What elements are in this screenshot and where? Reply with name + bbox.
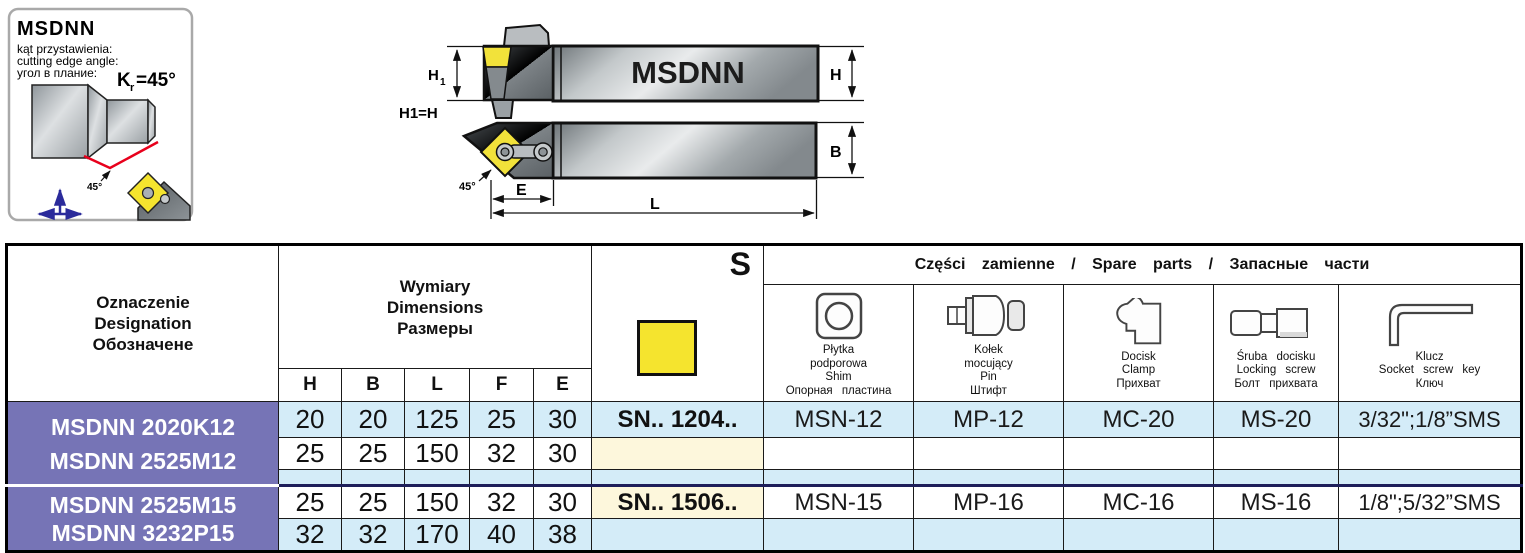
dimensions-header: Wymiary Dimensions Размеры [279,245,592,369]
spare-col-clamp: Docisk Clamp Прихват [1064,285,1214,402]
dim-value: 25 [342,438,405,470]
model-name: MSDNN 3232P15 [8,521,278,547]
model-name: MSDNN 2020K12 [8,410,278,446]
spare-col-screw: Śruba docisku Locking screw Болт прихват… [1214,285,1339,402]
col-l: L [405,369,470,402]
empty-cell [914,519,1064,552]
spare-col-pin: Kołek mocujący Pin Штифт [914,285,1064,402]
spare-parts-header: Części zamienne / Spare parts / Запасные… [764,245,1522,285]
dim-value: 30 [534,438,592,470]
empty-cell [279,470,342,486]
empty-cell [592,438,764,470]
dim-value: 25 [470,402,534,438]
insert-shape-icon [637,320,697,376]
screw-code: MS-20 [1214,402,1339,438]
dim-value: 25 [279,438,342,470]
tool-plan-view: 45° B E L [459,123,864,220]
spec-table: Oznaczenie Designation Обозначене Wymiar… [5,243,1523,553]
model-name: MSDNN 2525M12 [8,446,278,477]
model-name: MSDNN 2525M15 [8,491,278,521]
plan-angle-label: 45° [459,181,476,193]
col-f: F [470,369,534,402]
dim-e-label: E [516,182,527,199]
empty-cell [1214,519,1339,552]
clamp-icon [1064,295,1213,351]
dim-value: 32 [342,519,405,552]
empty-cell [1064,470,1214,486]
bar-label: MSDNN [631,55,745,90]
shim-code: MSN-12 [764,402,914,438]
empty-cell [1339,519,1522,552]
table-row: MSDNN 2525M15 MSDNN 3232P15 25 25 150 32… [7,486,1522,519]
empty-cell [1064,438,1214,470]
key-code: 3/32";1/8”SMS [1339,402,1522,438]
clamp-top [504,25,549,46]
empty-cell [914,438,1064,470]
tool-drawing: MSDNN H 1 H H1=H [0,0,1525,240]
insert-code: SN.. 1204.. [592,402,764,438]
dim-b-label: B [830,144,842,161]
tool-side-view: MSDNN H 1 H H1=H [399,25,864,122]
shim-icon [764,288,913,344]
catalog-page: MSDNN kąt przystawienia: cutting edge an… [0,0,1525,544]
pin-code: MP-12 [914,402,1064,438]
dim-l-label: L [650,196,660,213]
empty-cell [1214,438,1339,470]
empty-cell [1339,470,1522,486]
empty-cell [1339,438,1522,470]
col-b: B [342,369,405,402]
dim-value: 32 [470,438,534,470]
empty-cell [592,470,764,486]
dim-value: 32 [279,519,342,552]
dim-value: 125 [405,402,470,438]
dim-value: 170 [405,519,470,552]
hex-key-icon [1339,295,1520,351]
screw-code: MS-16 [1214,486,1339,519]
empty-cell [764,470,914,486]
insert-side [483,47,511,67]
dim-value: 38 [534,519,592,552]
col-e: E [534,369,592,402]
empty-cell [764,438,914,470]
clamp-code: MC-20 [1064,402,1214,438]
h1-eq-h-note: H1=H [399,105,438,122]
dim-value: 40 [470,519,534,552]
dim-value: 20 [342,402,405,438]
clamp-code: MC-16 [1064,486,1214,519]
empty-cell [1214,470,1339,486]
dim-value: 20 [279,402,342,438]
empty-cell [342,470,405,486]
key-code: 1/8";5/32”SMS [1339,486,1522,519]
insert-code: SN.. 1506.. [592,486,764,519]
locking-screw-icon [1214,295,1338,351]
pin-code: MP-16 [914,486,1064,519]
dim-h1-sub: 1 [440,77,446,88]
shim-code: MSN-15 [764,486,914,519]
insert-symbol: S [730,248,751,280]
empty-cell [914,470,1064,486]
dim-value: 150 [405,438,470,470]
empty-cell [592,519,764,552]
spare-col-key: Klucz Socket screw key Ключ [1339,285,1522,402]
empty-cell [1064,519,1214,552]
dim-value: 25 [342,486,405,519]
dim-value: 30 [534,402,592,438]
dim-value: 30 [534,486,592,519]
col-h: H [279,369,342,402]
empty-cell [470,470,534,486]
empty-cell [534,470,592,486]
dim-value: 150 [405,486,470,519]
empty-cell [405,470,470,486]
insert-column-header: S [592,245,764,402]
dim-h1-label: H [428,67,439,84]
plan-angle-arrow [479,170,491,181]
dim-value: 25 [279,486,342,519]
spare-col-shim: Płytka podporowa Shim Опорная пластина [764,285,914,402]
designation-group-2: MSDNN 2525M15 MSDNN 3232P15 [7,486,279,552]
empty-cell [764,519,914,552]
designation-header: Oznaczenie Designation Обозначене [7,245,279,402]
table-row: MSDNN 2020K12 MSDNN 2525M12 20 20 125 25… [7,402,1522,438]
dim-value: 32 [470,486,534,519]
pin-icon [914,288,1063,344]
designation-group-1: MSDNN 2020K12 MSDNN 2525M12 [7,402,279,486]
dim-h-label: H [830,67,842,84]
